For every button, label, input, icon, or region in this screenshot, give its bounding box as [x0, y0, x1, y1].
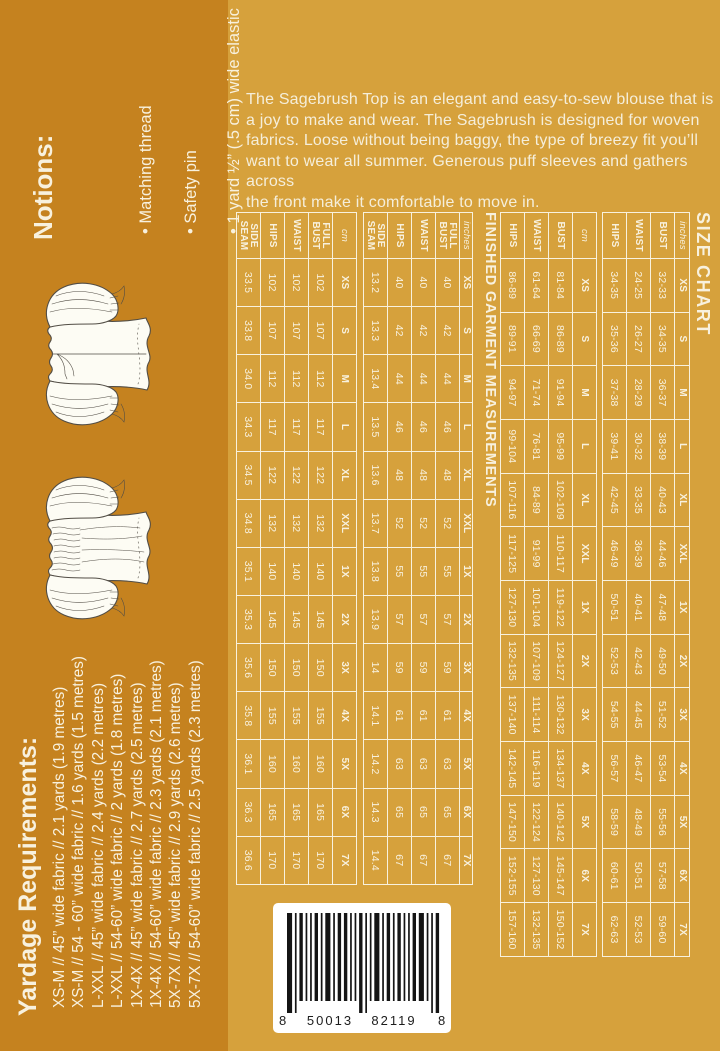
size-label: 1X: [675, 581, 690, 635]
measure-value: 130-132: [549, 688, 573, 742]
measure-value: 145: [309, 595, 333, 643]
size-label: 2X: [675, 634, 690, 688]
measure-value: 36-39: [627, 527, 651, 581]
barcode-bar: [404, 913, 406, 1001]
finished-garment-measurements-title: FINISHED GARMENT MEASUREMENTS: [473, 212, 497, 885]
measure-value: 13.5: [364, 403, 388, 451]
measure-value: 59-60: [651, 903, 675, 957]
measure-value: 34-35: [603, 258, 627, 312]
size-label: 3X: [333, 644, 357, 692]
measure-value: 54-55: [603, 688, 627, 742]
table-group-gap: [357, 213, 364, 885]
size-label: S: [460, 307, 473, 355]
measure-value: 111-114: [525, 688, 549, 742]
size-label: 5X: [460, 740, 473, 788]
measure-value: 122-124: [525, 795, 549, 849]
measure-value: 59: [412, 644, 436, 692]
barcode-bar: [338, 913, 341, 1001]
measure-value: 102: [261, 258, 285, 306]
size-label: L: [460, 403, 473, 451]
measure-value: 67: [436, 836, 460, 884]
barcode-digits-group: 82119: [371, 1013, 416, 1028]
garment-illustration-back-view: [22, 274, 167, 434]
measure-value: 48: [436, 451, 460, 499]
measure-value: 13.9: [364, 595, 388, 643]
size-label: XS: [675, 258, 690, 312]
barcode-bar: [393, 913, 395, 1001]
measure-value: 13.8: [364, 547, 388, 595]
measure-value: 48-49: [627, 795, 651, 849]
measure-label: FULL BUST: [436, 213, 460, 259]
measure-value: 122: [309, 451, 333, 499]
description-line: the front make it comfortable to move in…: [246, 193, 720, 214]
measure-value: 150: [261, 644, 285, 692]
measure-value: 132: [261, 499, 285, 547]
measure-label: WAIST: [285, 213, 309, 259]
measure-value: 33.8: [237, 307, 261, 355]
measure-value: 34-35: [651, 312, 675, 366]
measure-value: 61-64: [525, 258, 549, 312]
measure-value: 34.0: [237, 355, 261, 403]
measure-value: 52-53: [603, 634, 627, 688]
size-label: XS: [573, 258, 597, 312]
measure-value: 67: [412, 836, 436, 884]
measure-value: 170: [285, 836, 309, 884]
barcode-digits-group: 50013: [307, 1013, 353, 1028]
measure-value: 36.3: [237, 788, 261, 836]
measure-value: 32-33: [651, 258, 675, 312]
yardage-item: 5X-7X // 54-60” wide fabric // 2.5 yards…: [188, 660, 203, 1008]
measure-value: 155: [261, 692, 285, 740]
measure-value: 52: [436, 499, 460, 547]
size-label: XXL: [333, 499, 357, 547]
measure-value: 127-130: [525, 849, 549, 903]
barcode-digit: 8: [279, 1013, 286, 1028]
measure-value: 59: [436, 644, 460, 692]
measure-value: 37-38: [603, 366, 627, 420]
measure-value: 47-48: [651, 581, 675, 635]
barcode-digit: 8: [438, 1013, 445, 1028]
measure-value: 110-117: [549, 527, 573, 581]
measure-value: 13.7: [364, 499, 388, 547]
size-label: 6X: [333, 788, 357, 836]
measure-value: 35.6: [237, 644, 261, 692]
garment-illustration-front-view: [22, 468, 167, 628]
measure-value: 102-109: [549, 473, 573, 527]
measure-value: 13.4: [364, 355, 388, 403]
measure-value: 58-59: [603, 795, 627, 849]
measure-value: 61: [388, 692, 412, 740]
size-label: XXL: [675, 527, 690, 581]
measure-value: 165: [309, 788, 333, 836]
unit-label: inches: [675, 213, 690, 259]
barcode-bar: [295, 913, 297, 1013]
measure-value: 116-119: [525, 742, 549, 796]
size-label: S: [573, 312, 597, 366]
size-label: 4X: [333, 692, 357, 740]
size-label: 7X: [573, 903, 597, 957]
barcode-bar: [344, 913, 347, 1001]
size-label: XL: [675, 473, 690, 527]
description-line: want to wear all summer. Generous puff s…: [246, 152, 720, 193]
measure-value: 99-104: [501, 419, 525, 473]
barcode-bar: [306, 913, 308, 1001]
barcode-bar: [370, 913, 372, 1001]
size-label: 2X: [333, 595, 357, 643]
measure-value: 155: [309, 692, 333, 740]
unit-label: cm: [573, 213, 597, 259]
barcode-bar: [321, 913, 323, 1001]
measure-value: 86-89: [501, 258, 525, 312]
measure-value: 44-45: [627, 688, 651, 742]
measure-value: 95-99: [549, 419, 573, 473]
size-label: 7X: [460, 836, 473, 884]
measure-value: 55: [436, 547, 460, 595]
measure-value: 132: [285, 499, 309, 547]
measure-value: 65: [436, 788, 460, 836]
barcode-bar: [350, 913, 352, 1001]
measure-value: 55: [388, 547, 412, 595]
measure-value: 13.6: [364, 451, 388, 499]
description-line: The Sagebrush Top is an elegant and easy…: [246, 90, 720, 111]
measure-value: 59: [388, 644, 412, 692]
measure-value: 61: [436, 692, 460, 740]
measure-value: 42-43: [627, 634, 651, 688]
notions-title: Notions:: [30, 135, 56, 240]
measure-label: HIPS: [501, 213, 525, 259]
size-label: XXL: [460, 499, 473, 547]
measure-value: 60-61: [603, 849, 627, 903]
measure-value: 76-81: [525, 419, 549, 473]
measure-value: 14.1: [364, 692, 388, 740]
size-label: 3X: [675, 688, 690, 742]
measure-value: 40: [412, 258, 436, 306]
measure-label: HIPS: [261, 213, 285, 259]
measure-value: 107: [261, 307, 285, 355]
measure-value: 160: [285, 740, 309, 788]
measure-value: 132-135: [525, 903, 549, 957]
measure-value: 155: [285, 692, 309, 740]
barcode-bar: [436, 913, 439, 1013]
yardage-item: L-XXL // 54-60” wide fabric // 2 yards (…: [110, 674, 125, 1008]
size-chart-title: SIZE CHART: [690, 212, 712, 957]
size-label: 3X: [460, 644, 473, 692]
measure-value: 117: [261, 403, 285, 451]
measure-value: 30-32: [627, 419, 651, 473]
pattern-envelope-back: Notions: Matching thread Safety pin 1 ya…: [0, 0, 720, 1051]
measure-value: 40-43: [651, 473, 675, 527]
size-label: M: [675, 366, 690, 420]
measure-value: 145: [285, 595, 309, 643]
size-label: M: [460, 355, 473, 403]
barcode-bar: [431, 913, 433, 1013]
measure-value: 49-50: [651, 634, 675, 688]
measure-label: FULL BUST: [309, 213, 333, 259]
measure-value: 57: [436, 595, 460, 643]
measure-value: 42-45: [603, 473, 627, 527]
barcode-bar: [355, 913, 357, 1001]
measure-value: 137-140: [501, 688, 525, 742]
measure-value: 46-47: [627, 742, 651, 796]
measure-value: 147-150: [501, 795, 525, 849]
measure-value: 14.3: [364, 788, 388, 836]
measure-label: BUST: [549, 213, 573, 259]
measure-value: 56-57: [603, 742, 627, 796]
measure-value: 42: [436, 307, 460, 355]
measure-value: 24-25: [627, 258, 651, 312]
measure-value: 34.8: [237, 499, 261, 547]
notions-item: Safety pin: [183, 150, 200, 234]
measure-label: SIDE SEAM: [364, 213, 388, 259]
measure-value: 81-84: [549, 258, 573, 312]
measure-value: 14.2: [364, 740, 388, 788]
measure-value: 66-69: [525, 312, 549, 366]
size-label: 2X: [573, 634, 597, 688]
measure-label: WAIST: [627, 213, 651, 259]
measure-label: HIPS: [388, 213, 412, 259]
measure-value: 46: [388, 403, 412, 451]
measure-value: 91-94: [549, 366, 573, 420]
size-label: 1X: [573, 581, 597, 635]
measure-value: 145-147: [549, 849, 573, 903]
size-label: 5X: [675, 795, 690, 849]
size-label: XS: [333, 258, 357, 306]
size-label: 7X: [675, 903, 690, 957]
measure-value: 51-52: [651, 688, 675, 742]
measure-value: 102: [309, 258, 333, 306]
unit-label: cm: [333, 213, 357, 259]
yardage-item: 1X-4X // 54-60” wide fabric // 2.3 yards…: [149, 660, 164, 1008]
size-label: L: [333, 403, 357, 451]
measure-value: 94-97: [501, 366, 525, 420]
size-label: XL: [573, 473, 597, 527]
measure-value: 13.3: [364, 307, 388, 355]
measure-value: 101-104: [525, 581, 549, 635]
measure-value: 89-91: [501, 312, 525, 366]
measure-value: 160: [309, 740, 333, 788]
measure-value: 122: [285, 451, 309, 499]
measure-value: 124-127: [549, 634, 573, 688]
measure-value: 140: [285, 547, 309, 595]
measure-value: 57: [412, 595, 436, 643]
measure-value: 150-152: [549, 903, 573, 957]
size-label: XXL: [573, 527, 597, 581]
measure-value: 36.1: [237, 740, 261, 788]
measure-value: 52-53: [627, 903, 651, 957]
measure-value: 112: [261, 355, 285, 403]
measure-value: 157-160: [501, 903, 525, 957]
measure-label: HIPS: [603, 213, 627, 259]
measure-value: 84-89: [525, 473, 549, 527]
size-label: 4X: [460, 692, 473, 740]
size-label: 5X: [333, 740, 357, 788]
measure-value: 40-41: [627, 581, 651, 635]
measure-value: 14: [364, 644, 388, 692]
measure-value: 165: [261, 788, 285, 836]
size-label: XS: [460, 258, 473, 306]
measure-value: 112: [309, 355, 333, 403]
size-label: 6X: [675, 849, 690, 903]
measure-value: 67: [388, 836, 412, 884]
measure-value: 52: [388, 499, 412, 547]
barcode-bar: [359, 913, 362, 1013]
barcode-bar: [427, 913, 429, 1001]
measure-value: 160: [261, 740, 285, 788]
yardage-item: XS-M // 45” wide fabric // 2.1 yards (1.…: [52, 687, 67, 1008]
size-label: 3X: [573, 688, 597, 742]
measure-value: 107: [285, 307, 309, 355]
barcode-bar: [333, 913, 335, 1001]
barcode-bar: [413, 913, 416, 1001]
measure-value: 48: [412, 451, 436, 499]
measure-value: 142-145: [501, 742, 525, 796]
notions-item: Matching thread: [138, 105, 155, 234]
size-label: 4X: [573, 742, 597, 796]
measure-value: 46-49: [603, 527, 627, 581]
measure-value: 35.8: [237, 692, 261, 740]
barcode-bar: [419, 913, 424, 1001]
measure-value: 46: [412, 403, 436, 451]
measure-label: SIDE SEAM: [237, 213, 261, 259]
measure-value: 57-58: [651, 849, 675, 903]
size-label: L: [573, 419, 597, 473]
measure-label: WAIST: [525, 213, 549, 259]
barcode-bar: [325, 913, 330, 1001]
measure-value: 34.5: [237, 451, 261, 499]
measure-value: 44: [388, 355, 412, 403]
measure-value: 63: [388, 740, 412, 788]
measure-value: 63: [412, 740, 436, 788]
measure-value: 119-122: [549, 581, 573, 635]
barcode-bar: [382, 913, 384, 1001]
measure-value: 36.6: [237, 836, 261, 884]
description-line: fabrics. Loose without being baggy, the …: [246, 131, 720, 152]
measure-value: 53-54: [651, 742, 675, 796]
measure-value: 35.3: [237, 595, 261, 643]
measure-value: 145: [261, 595, 285, 643]
measure-value: 33.5: [237, 258, 261, 306]
size-chart-table: SIZE CHART inchesXSSMLXLXXL1X2X3X4X5X6X7…: [500, 212, 712, 957]
measure-value: 46: [436, 403, 460, 451]
measure-value: 117-125: [501, 527, 525, 581]
measure-value: 40: [388, 258, 412, 306]
measure-label: BUST: [651, 213, 675, 259]
yardage-item: 5X-7X // 45” wide fabric // 2.9 yards (2…: [168, 682, 183, 1008]
measure-value: 44-46: [651, 527, 675, 581]
measure-value: 55-56: [651, 795, 675, 849]
size-label: 5X: [573, 795, 597, 849]
measure-value: 107-116: [501, 473, 525, 527]
measure-value: 65: [388, 788, 412, 836]
measure-value: 44: [436, 355, 460, 403]
measure-value: 35-36: [603, 312, 627, 366]
measure-value: 50-51: [603, 581, 627, 635]
measure-value: 134-137: [549, 742, 573, 796]
size-label: L: [675, 419, 690, 473]
measure-value: 38-39: [651, 419, 675, 473]
size-label: 1X: [333, 547, 357, 595]
measure-value: 48: [388, 451, 412, 499]
yardage-item: XS-M // 54 - 60” wide fabric // 1.6 yard…: [71, 656, 86, 1008]
measure-value: 140: [261, 547, 285, 595]
measure-value: 132-135: [501, 634, 525, 688]
measure-label: WAIST: [412, 213, 436, 259]
measure-value: 55: [412, 547, 436, 595]
barcode: 8 50013 82119 8: [273, 903, 451, 1038]
measure-value: 42: [388, 307, 412, 355]
measure-value: 52: [412, 499, 436, 547]
finished-garment-measurements-table: FINISHED GARMENT MEASUREMENTS inchesXSSM…: [236, 212, 497, 885]
measure-value: 127-130: [501, 581, 525, 635]
measure-value: 50-51: [627, 849, 651, 903]
measure-value: 152-155: [501, 849, 525, 903]
size-label: 1X: [460, 547, 473, 595]
barcode-bar: [315, 913, 318, 1001]
size-label: S: [675, 312, 690, 366]
size-label: 7X: [333, 836, 357, 884]
measure-value: 170: [261, 836, 285, 884]
measure-value: 112: [285, 355, 309, 403]
measure-value: 36-37: [651, 366, 675, 420]
description-paragraph: The Sagebrush Top is an elegant and easy…: [246, 90, 720, 214]
size-label: 4X: [675, 742, 690, 796]
measure-value: 140: [309, 547, 333, 595]
measure-value: 44: [412, 355, 436, 403]
table-group-gap: [597, 213, 603, 957]
measure-value: 107: [309, 307, 333, 355]
unit-label: inches: [460, 213, 473, 259]
yardage-item: 1X-4X // 45” wide fabric // 2.7 yards (2…: [130, 682, 145, 1008]
barcode-bar: [310, 913, 312, 1001]
measure-value: 33-35: [627, 473, 651, 527]
measure-value: 40: [436, 258, 460, 306]
barcode-bar: [299, 913, 302, 1001]
measure-value: 132: [309, 499, 333, 547]
barcode-bar: [387, 913, 390, 1001]
size-label: S: [333, 307, 357, 355]
measure-value: 170: [309, 836, 333, 884]
barcode-bar: [287, 913, 292, 1013]
size-label: M: [333, 355, 357, 403]
measure-value: 107-109: [525, 634, 549, 688]
measure-value: 35.1: [237, 547, 261, 595]
measure-value: 13.2: [364, 258, 388, 306]
barcode-bar: [365, 913, 367, 1013]
measure-value: 140-142: [549, 795, 573, 849]
notions-item: 1 yard ½” (.5 cm) wide elastic: [226, 8, 243, 234]
measure-value: 122: [261, 451, 285, 499]
size-label: M: [573, 366, 597, 420]
description-line: a joy to make and wear. The Sagebrush is…: [246, 111, 720, 132]
measure-value: 65: [412, 788, 436, 836]
measure-value: 28-29: [627, 366, 651, 420]
measure-value: 39-41: [603, 419, 627, 473]
measure-value: 57: [388, 595, 412, 643]
measure-value: 62-63: [603, 903, 627, 957]
measure-value: 150: [285, 644, 309, 692]
measure-value: 26-27: [627, 312, 651, 366]
measure-value: 42: [412, 307, 436, 355]
barcode-bar: [408, 913, 410, 1001]
measure-value: 117: [285, 403, 309, 451]
barcode-bar: [374, 913, 379, 1001]
measure-value: 61: [412, 692, 436, 740]
barcode-bar: [397, 913, 400, 1001]
yardage-title: Yardage Requirements:: [16, 737, 41, 1016]
measure-value: 86-89: [549, 312, 573, 366]
size-label: 2X: [460, 595, 473, 643]
measure-value: 34.3: [237, 403, 261, 451]
